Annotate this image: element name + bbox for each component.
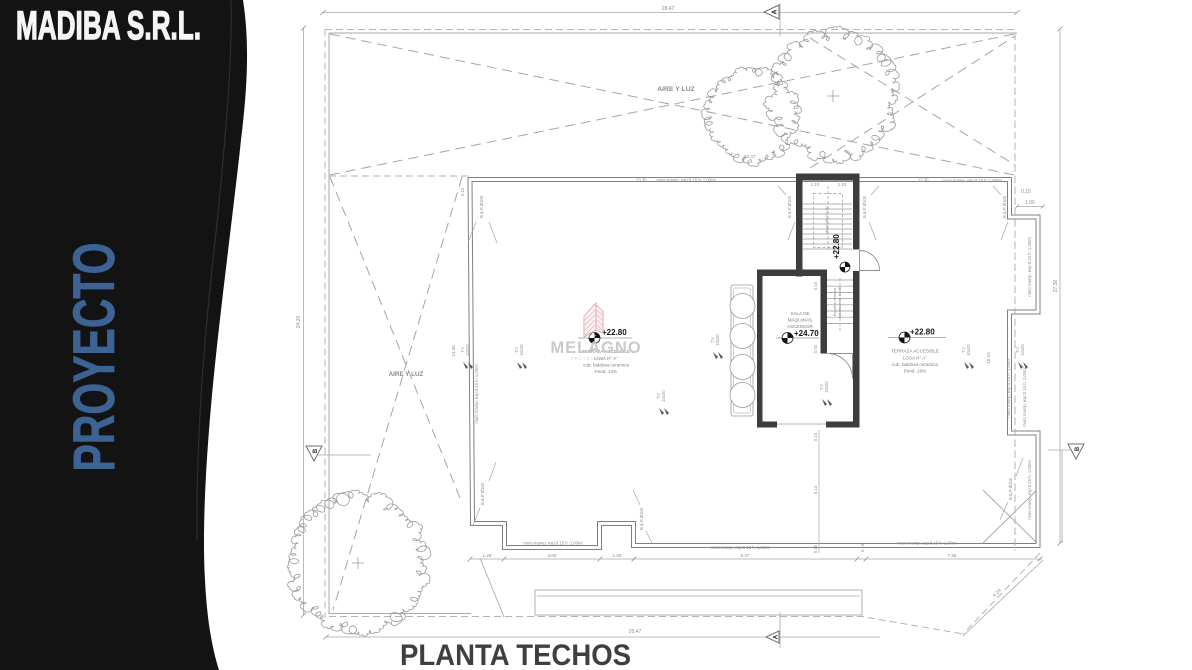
svg-text:PLANTA TECHOS: PLANTA TECHOS: [400, 639, 631, 670]
svg-text:10x20: 10x20: [966, 344, 971, 356]
svg-text:+24.70: +24.70: [794, 329, 819, 338]
svg-text:AIRE Y LUZ: AIRE Y LUZ: [389, 371, 424, 378]
svg-text:28.47: 28.47: [662, 6, 675, 12]
svg-text:A: A: [773, 634, 780, 639]
svg-text:Pend. 10%: Pend. 10%: [595, 369, 617, 374]
svg-text:0.15: 0.15: [860, 543, 865, 552]
svg-text:4.00: 4.00: [548, 553, 557, 558]
svg-text:0.15: 0.15: [460, 187, 465, 196]
svg-text:10x20: 10x20: [715, 334, 720, 346]
svg-text:1.28: 1.28: [483, 553, 492, 558]
svg-text:ASCENSOR: ASCENSOR: [787, 324, 813, 329]
svg-text:1.10: 1.10: [811, 182, 820, 187]
svg-text:MELAGNO: MELAGNO: [550, 339, 641, 357]
svg-text:B.&.P Ø100: B.&.P Ø100: [479, 195, 484, 218]
svg-text:MADIBA S.R.L.: MADIBA S.R.L.: [16, 4, 201, 48]
svg-text:muro mamp. esp:0.15 h: 1,00mt: muro mamp. esp:0.15 h: 1,00mt: [942, 178, 1002, 183]
svg-text:0.15: 0.15: [813, 281, 818, 290]
svg-text:baranda met. h:0.90: baranda met. h:0.90: [838, 286, 842, 318]
svg-text:13.30: 13.30: [636, 178, 647, 183]
svg-text:0.15: 0.15: [813, 432, 818, 441]
svg-text:0.15: 0.15: [1021, 189, 1031, 195]
svg-text:B.&.P Ø100: B.&.P Ø100: [480, 482, 485, 505]
svg-text:10x20: 10x20: [661, 390, 666, 402]
svg-text:muro mamp. esp:0.15 h: 1,00mt: muro mamp. esp:0.15 h: 1,00mt: [1006, 357, 1011, 417]
svg-text:P R O Y E C T O S: P R O Y E C T O S: [571, 356, 605, 361]
svg-text:0.15: 0.15: [813, 544, 818, 553]
svg-text:Escalera metalica: Escalera metalica: [833, 288, 837, 316]
svg-text:SALA DE: SALA DE: [790, 311, 809, 316]
svg-text:PROYECTO: PROYECTO: [62, 243, 127, 472]
svg-text:7.55: 7.55: [948, 553, 957, 558]
svg-text:cub. baldosa ceramica: cub. baldosa ceramica: [583, 363, 629, 368]
svg-text:muro mamp. esp:0.15 h: 1,00mt: muro mamp. esp:0.15 h: 1,00mt: [656, 178, 716, 183]
svg-text:MAQUINAS: MAQUINAS: [788, 318, 813, 323]
svg-text:muro mamp. esp:0.15 h: 1,00mt: muro mamp. esp:0.15 h: 1,00mt: [1027, 236, 1032, 296]
svg-text:1.28: 1.28: [613, 553, 622, 558]
svg-text:24.20: 24.20: [296, 316, 302, 329]
svg-text:5.13: 5.13: [813, 485, 818, 494]
svg-text:1.10: 1.10: [838, 182, 847, 187]
svg-text:B: B: [313, 448, 319, 453]
svg-text:muro mamp. esp:0.15 h: 1,00mt: muro mamp. esp:0.15 h: 1,00mt: [710, 545, 770, 550]
svg-text:A: A: [772, 9, 779, 14]
svg-text:LOSA H° A°: LOSA H° A°: [903, 356, 928, 361]
svg-text:22.47: 22.47: [744, 154, 756, 159]
svg-text:TERRAZA ACCESIBLE: TERRAZA ACCESIBLE: [891, 349, 939, 354]
svg-text:10x20: 10x20: [519, 344, 524, 356]
svg-text:25.47: 25.47: [629, 629, 642, 635]
svg-text:muro mamp. esp:0.15 h: 1,00mt: muro mamp. esp:0.15 h: 1,00mt: [523, 541, 583, 546]
svg-text:1.00: 1.00: [1025, 200, 1035, 206]
svg-text:cub. baldosa ceramica: cub. baldosa ceramica: [892, 362, 938, 367]
svg-text:B.&.P Ø100: B.&.P Ø100: [1008, 477, 1013, 500]
svg-text:B.&.P Ø100: B.&.P Ø100: [862, 195, 867, 218]
svg-text:+22.80: +22.80: [910, 328, 935, 337]
svg-text:10x20: 10x20: [465, 344, 470, 356]
svg-text:+22.80: +22.80: [832, 234, 841, 259]
svg-text:10x20: 10x20: [824, 381, 829, 393]
svg-text:desarrollo h:3.00: desarrollo h:3.00: [825, 207, 829, 234]
svg-text:+22.80: +22.80: [602, 328, 627, 337]
svg-text:muro mamp. esp:0.15 h: 1,00mt: muro mamp. esp:0.15 h: 1,00mt: [474, 363, 479, 423]
svg-text:14.45: 14.45: [451, 345, 456, 357]
svg-text:15.15: 15.15: [986, 352, 991, 364]
svg-text:9.37: 9.37: [741, 553, 750, 558]
svg-text:27.30: 27.30: [1053, 280, 1059, 293]
svg-text:muro mamp. esp:0.15 h: 1,00mt: muro mamp. esp:0.15 h: 1,00mt: [1022, 366, 1027, 426]
svg-text:B.&.P Ø100: B.&.P Ø100: [639, 507, 644, 530]
svg-text:10x20: 10x20: [1020, 344, 1025, 356]
svg-text:AIRE Y LUZ: AIRE Y LUZ: [657, 86, 695, 93]
svg-text:B.&.P Ø100: B.&.P Ø100: [787, 195, 792, 218]
svg-text:Pend. 10%: Pend. 10%: [904, 369, 926, 374]
svg-text:13.30: 13.30: [918, 178, 929, 183]
svg-text:5.92: 5.92: [813, 344, 818, 353]
svg-text:B.&.P Ø100: B.&.P Ø100: [1002, 195, 1007, 218]
svg-text:B: B: [1075, 446, 1081, 451]
svg-text:muro mamp. esp:0.15 h: 1,00mt: muro mamp. esp:0.15 h: 1,00mt: [897, 541, 957, 546]
svg-text:muro mamp. esp:0.15 h: 1,00mt: muro mamp. esp:0.15 h: 1,00mt: [1027, 459, 1032, 519]
